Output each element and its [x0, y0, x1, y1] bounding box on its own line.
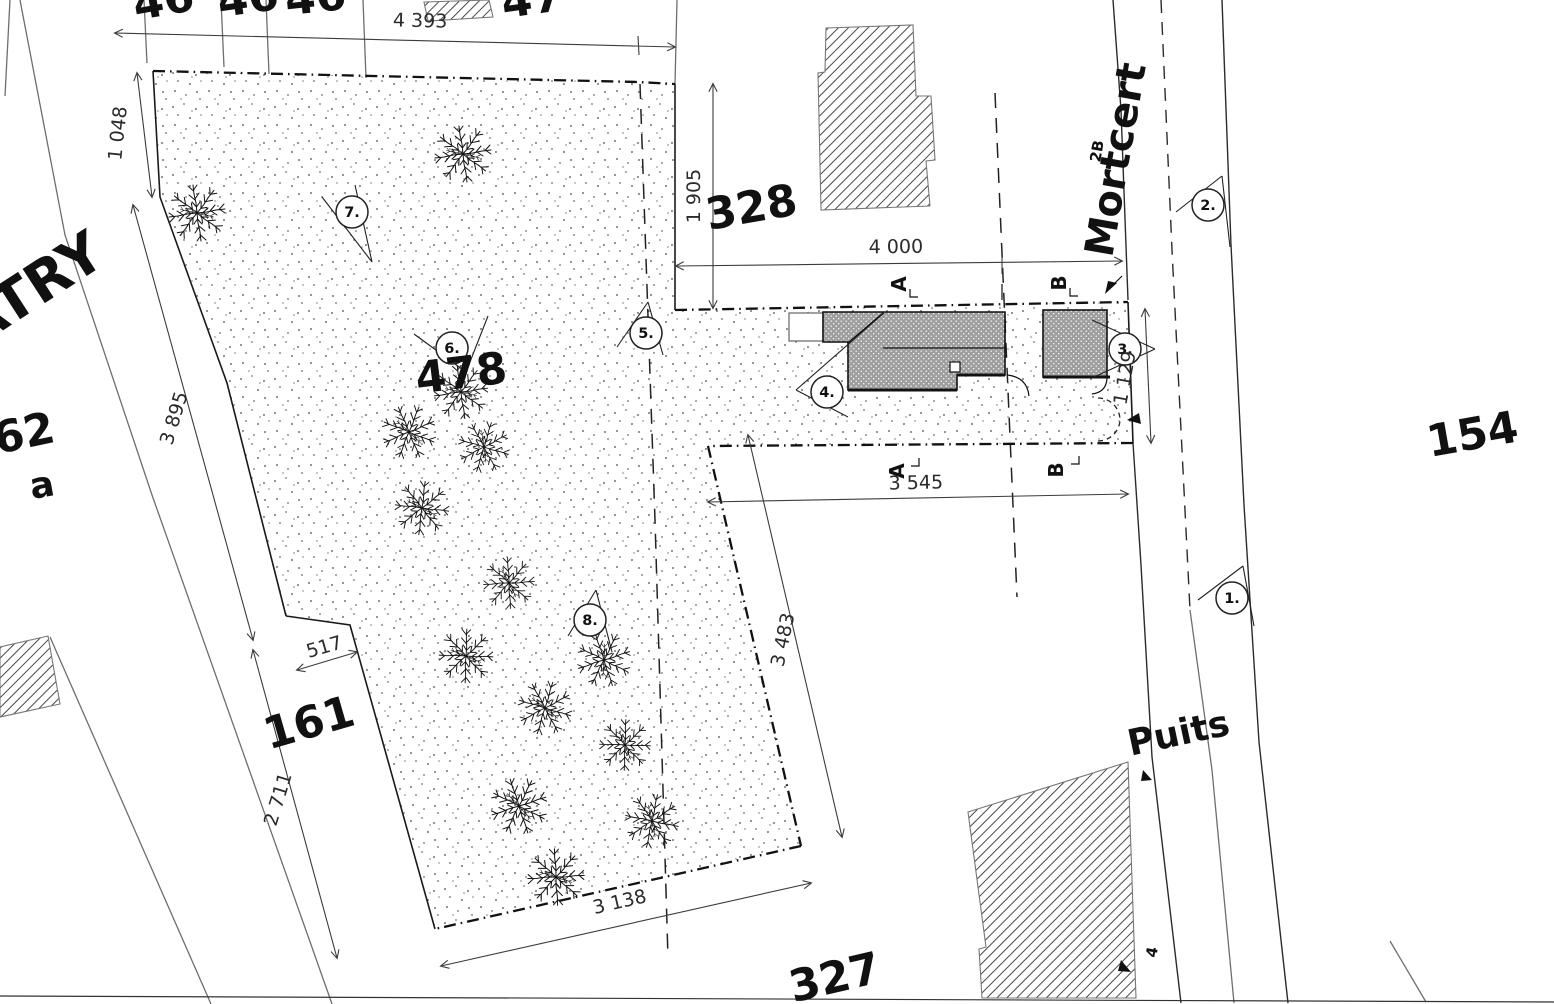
mortcert-road-lines: [1113, 0, 1426, 1003]
building-bottom-left: [0, 636, 60, 717]
dimension-4000: 4 000: [869, 236, 924, 259]
dimension-3895: 3 895: [156, 389, 193, 447]
viewpoint-2-label: 2.: [1200, 198, 1216, 214]
parcel-4-label: 4: [1142, 945, 1162, 958]
viewpoint-1: 1.: [1198, 566, 1254, 626]
dimension-517: 517: [304, 632, 345, 663]
dimension-3545: 3 545: [888, 471, 943, 494]
dimension-3483: 3 483: [767, 611, 800, 669]
access-arrow-puits-icon: [1141, 770, 1152, 781]
roof-vent-square: [950, 362, 960, 372]
viewpoint-7-label: 7.: [344, 205, 360, 221]
building-bottom-right: [968, 762, 1136, 998]
parcel-327-label: 327: [784, 943, 885, 1004]
section-b-bottom: B: [1044, 462, 1068, 477]
viewpoint-4-label: 4.: [819, 385, 835, 401]
parcel-162-label: 162: [0, 402, 59, 471]
site-plan-drawing: 7. 6. 5. 4. 3. 2. 1. 8. A B A B 4 393 1 …: [0, 0, 1554, 1004]
parcel-162a-label: a: [26, 463, 57, 508]
dimension-1905: 1 905: [683, 169, 705, 223]
annex-white-rect: [789, 313, 823, 341]
site-plan-page: 7. 6. 5. 4. 3. 2. 1. 8. A B A B 4 393 1 …: [0, 0, 1554, 1004]
building-b: [1043, 310, 1107, 377]
section-a-top: A: [887, 276, 911, 292]
parcel-46a-label: 46: [129, 0, 198, 31]
dimension-4393: 4 393: [393, 9, 448, 32]
viewpoint-5-label: 5.: [638, 326, 654, 342]
building-parcel-328: [818, 25, 935, 210]
parcel-478-area: [153, 71, 1133, 929]
parcel-161-label: 161: [258, 686, 360, 760]
viewpoint-2: 2.: [1176, 176, 1230, 247]
bottom-frame-line: [0, 996, 1554, 1002]
viewpoint-1-label: 1.: [1224, 591, 1240, 607]
parcel-154-label: 154: [1423, 402, 1522, 468]
viewpoint-8-label: 8.: [582, 613, 598, 629]
parcel-46c-label: 46: [282, 0, 348, 26]
parcel-328-label: 328: [702, 175, 801, 241]
parcel-46b-label: 46: [214, 0, 282, 28]
street-puits-label: Puits: [1124, 703, 1233, 765]
dimension-1048: 1 048: [104, 105, 132, 161]
section-b-top: B: [1047, 275, 1071, 290]
dimension-2711: 2 711: [260, 770, 297, 828]
parcel-47-label: 47: [498, 0, 566, 29]
